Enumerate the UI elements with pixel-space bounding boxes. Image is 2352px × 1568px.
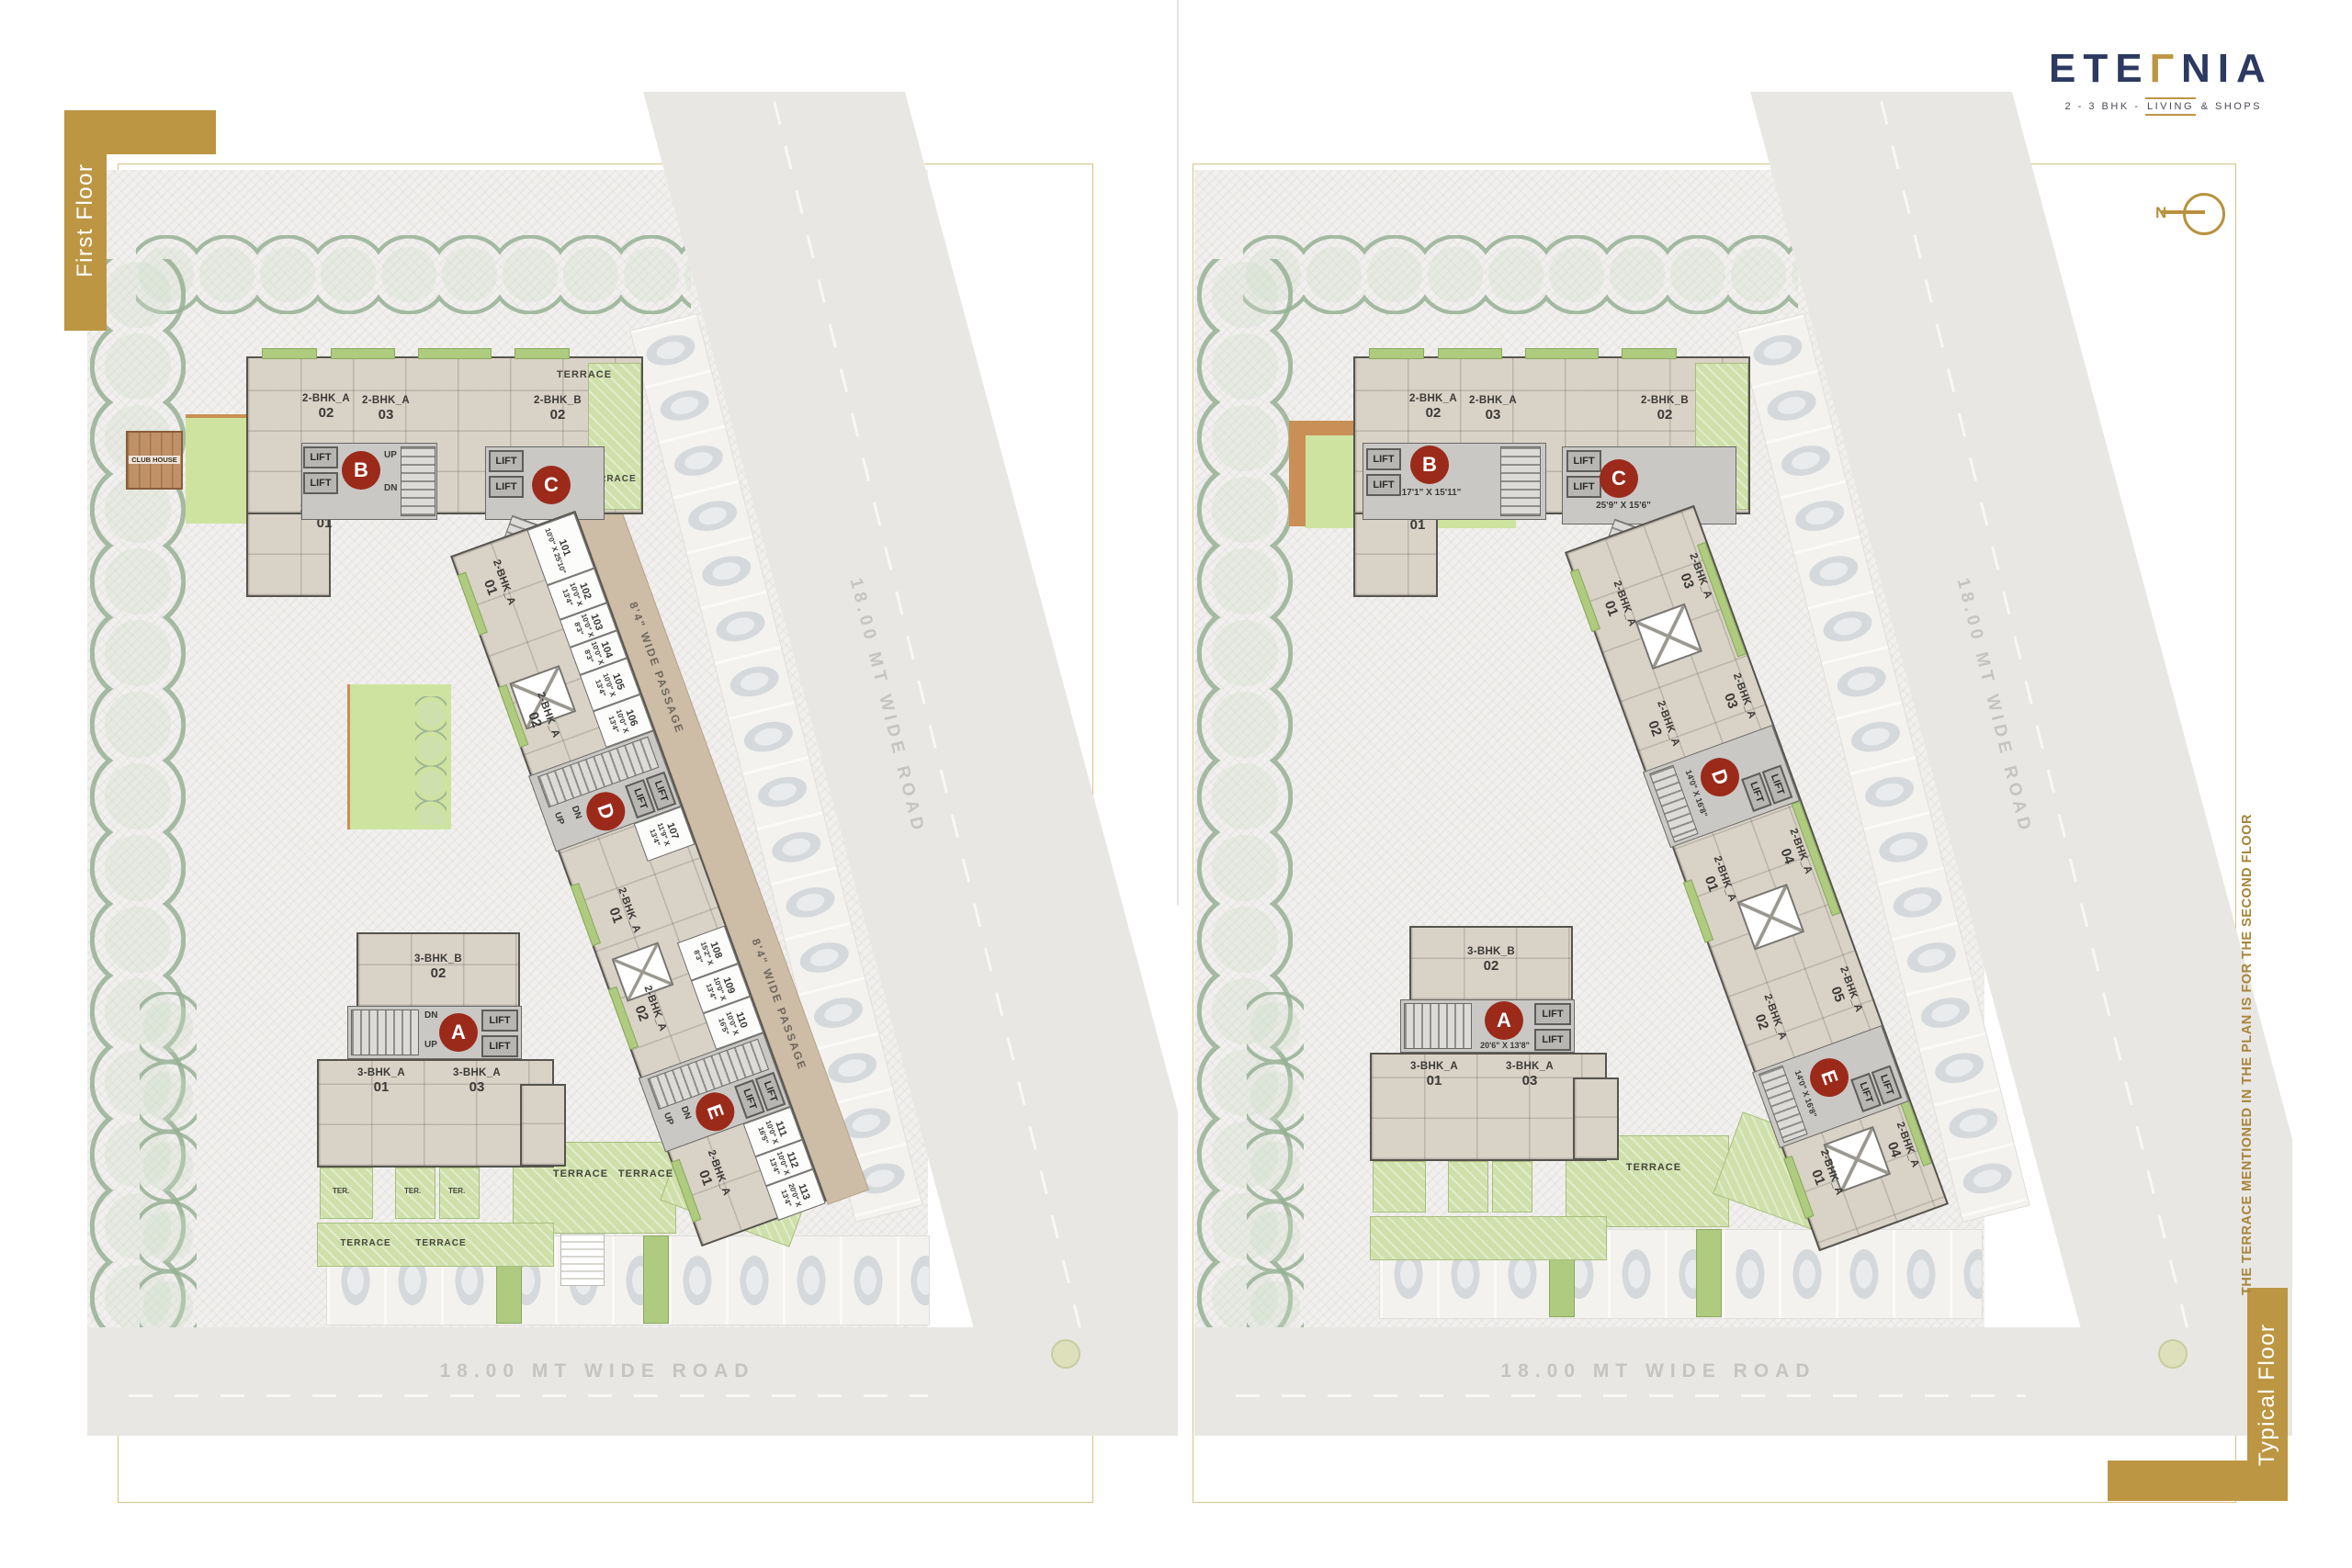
roundabout xyxy=(1051,1339,1080,1369)
roundabout xyxy=(2158,1339,2188,1369)
balcony-strip xyxy=(514,348,570,359)
planter xyxy=(1696,1229,1722,1317)
entrance-steps xyxy=(560,1229,605,1286)
balcony-strip xyxy=(1525,348,1599,359)
ter-label: TER. xyxy=(404,1187,421,1195)
ter-label: TER. xyxy=(448,1187,465,1195)
terrace-note: THE TERRACE MENTIONED IN THE PLAN IS FOR… xyxy=(2240,751,2255,1295)
core-dimension: 17'1" X 15'11" xyxy=(1385,488,1477,498)
page-divider xyxy=(1177,0,1179,905)
gold-tab-first-floor: First Floor xyxy=(64,110,107,331)
balcony-strip xyxy=(262,348,317,359)
balcony-strip xyxy=(331,348,395,359)
unit-label: 2-BHK_A03 xyxy=(1461,395,1525,423)
north-icon xyxy=(2183,193,2225,235)
tree-column xyxy=(140,992,197,1341)
terrace-label: TERRACE xyxy=(548,369,621,380)
balcony-strip xyxy=(1622,348,1677,359)
lift-box: LIFT xyxy=(489,450,524,472)
tree-row xyxy=(136,235,691,314)
typical-floor-plan: 18.00 MT WIDE ROAD 18.00 MT WIDE ROAD TE… xyxy=(1178,0,2352,1568)
lift-box: LIFT xyxy=(303,472,338,494)
lift-shaft xyxy=(1737,884,1805,950)
unit-label: 2-BHK_A01 xyxy=(596,876,646,950)
block-marker-c: C xyxy=(532,466,571,504)
lift-box: LIFT xyxy=(1534,1003,1571,1025)
up-label: UP xyxy=(424,1040,437,1050)
dn-label: DN xyxy=(384,483,397,493)
unit-label: 2-BHK_B02 xyxy=(526,395,590,423)
tree-row xyxy=(1243,235,1798,314)
lift-box: LIFT xyxy=(1534,1029,1571,1051)
stairs xyxy=(1500,446,1541,516)
brand-logo: ETEΓNIA xyxy=(2049,46,2262,92)
gold-tab-typical-floor: Typical Floor xyxy=(2247,1288,2288,1501)
block-marker-c: C xyxy=(1600,459,1638,498)
lift-box: LIFT xyxy=(1366,448,1401,470)
terrace-cell xyxy=(1492,1161,1532,1213)
building-a-wing xyxy=(520,1084,566,1167)
unit-label: 3-BHK_A01 xyxy=(347,1067,415,1095)
brand-block: ETEΓNIA 2 - 3 BHK - LIVING & SHOPS xyxy=(2049,46,2262,112)
terrace-label: TERRACE xyxy=(329,1238,402,1248)
block-marker-a: A xyxy=(439,1013,478,1052)
building-a-wing xyxy=(1573,1077,1619,1160)
terrace-label: TERRACE xyxy=(404,1238,478,1248)
block-marker-b: B xyxy=(342,451,380,490)
stairs xyxy=(1404,1003,1472,1049)
boundary-wall xyxy=(1289,421,1306,526)
lift-box: LIFT xyxy=(489,476,524,498)
balcony-strip xyxy=(1369,348,1424,359)
planter xyxy=(643,1235,669,1324)
first-floor-plan: CLUB HOUSE 18.00 MT WIDE ROAD 18.00 MT W… xyxy=(0,0,1178,1568)
unit-label: 2-BHK_A03 xyxy=(354,395,418,423)
first-floor-label: First Floor xyxy=(64,110,107,331)
unit-label: 3-BHK_B02 xyxy=(1457,946,1525,974)
unit-label: 2-BHK_A02 xyxy=(1635,690,1685,763)
unit-label: 2-BHK_A02 xyxy=(1401,393,1465,421)
terrace-cell xyxy=(1373,1161,1426,1213)
up-label: UP xyxy=(384,450,397,460)
terrace-label: TERRACE xyxy=(544,1168,617,1179)
block-marker-b: B xyxy=(1410,446,1449,484)
block-marker-a: A xyxy=(1485,1001,1523,1040)
unit-label: 2-BHK_B02 xyxy=(1633,395,1697,423)
stairs xyxy=(401,446,435,516)
road-label: 18.00 MT WIDE ROAD xyxy=(1456,1360,1860,1382)
terrace-label: TERRACE xyxy=(1617,1162,1690,1173)
unit-label: 2-BHK_A01 xyxy=(1591,570,1641,643)
tree-cluster xyxy=(415,696,447,825)
north-needle xyxy=(2161,210,2205,214)
dn-label: DN xyxy=(424,1010,437,1021)
lift-box: LIFT xyxy=(1566,476,1601,498)
core-dimension: 25'9" X 15'6" xyxy=(1573,501,1674,511)
lift-box: LIFT xyxy=(1566,450,1601,472)
brand-tagline: 2 - 3 BHK - LIVING & SHOPS xyxy=(2049,101,2262,112)
balcony-strip xyxy=(418,348,492,359)
unit-label: 3-BHK_A03 xyxy=(1496,1061,1564,1089)
road-centerline xyxy=(129,1394,928,1397)
unit-label: 3-BHK_B02 xyxy=(404,953,472,981)
unit-label: 3-BHK_A01 xyxy=(1400,1061,1468,1089)
stairs xyxy=(351,1010,419,1055)
lift-box: LIFT xyxy=(481,1010,518,1032)
road-label: 18.00 MT WIDE ROAD xyxy=(395,1360,799,1382)
typical-floor-label: Typical Floor xyxy=(2247,1288,2288,1501)
terrace-area xyxy=(1370,1216,1607,1260)
road-centerline xyxy=(1236,1394,2026,1397)
balcony-strip xyxy=(1438,348,1502,359)
ter-label: TER. xyxy=(333,1187,349,1195)
unit-label: 2-BHK_A02 xyxy=(1742,983,1792,1056)
terrace-label: TERRACE xyxy=(609,1168,683,1179)
unit-label: 3-BHK_A03 xyxy=(443,1067,511,1095)
lift-box: LIFT xyxy=(303,446,338,468)
lift-box: LIFT xyxy=(481,1035,518,1057)
unit-label: 2-BHK_A05 xyxy=(1818,955,1868,1029)
terrace-cell xyxy=(1448,1161,1488,1213)
club-house-label: CLUB HOUSE xyxy=(129,456,180,464)
logo-accent-letter: Γ xyxy=(2150,46,2181,91)
unit-label: 2-BHK_A02 xyxy=(294,393,358,421)
tree-column xyxy=(1247,992,1304,1341)
unit-label: 2-BHK_A03 xyxy=(1712,662,1761,736)
